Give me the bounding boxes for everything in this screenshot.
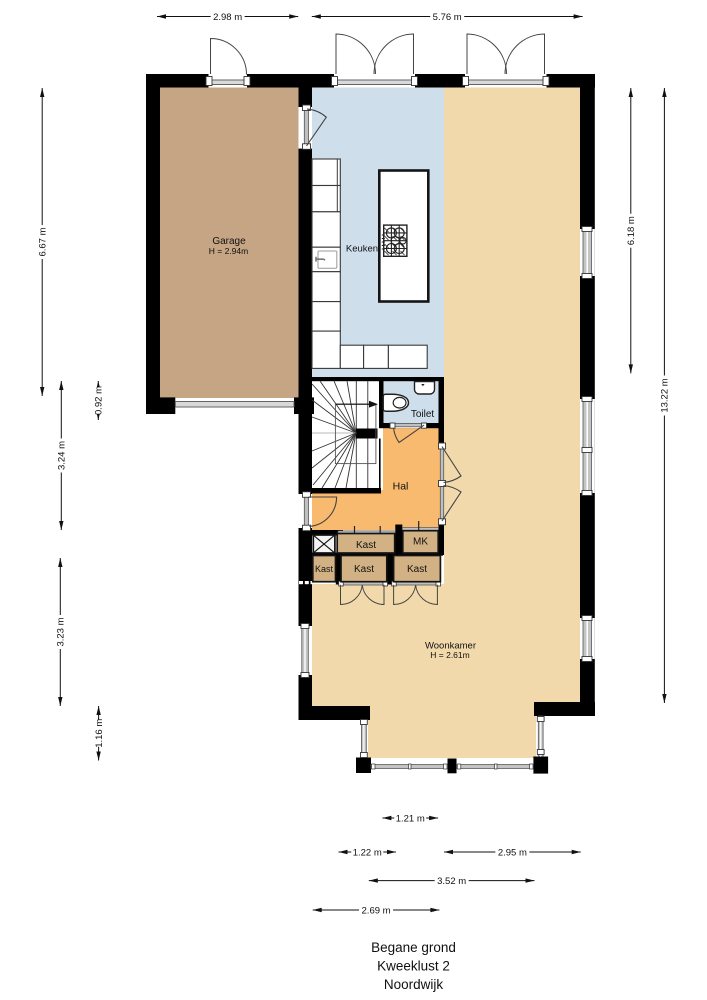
- svg-text:Hal: Hal: [393, 481, 409, 493]
- svg-text:0.92 m: 0.92 m: [94, 386, 105, 415]
- svg-text:2.98 m: 2.98 m: [213, 12, 242, 23]
- svg-text:1.22 m: 1.22 m: [353, 847, 382, 858]
- svg-text:Begane grond: Begane grond: [371, 940, 456, 955]
- svg-text:MK: MK: [413, 537, 428, 548]
- svg-text:2.69 m: 2.69 m: [362, 905, 391, 916]
- svg-text:6.18 m: 6.18 m: [626, 216, 637, 245]
- svg-text:H = 2.94m: H = 2.94m: [209, 246, 248, 256]
- svg-text:Keuken: Keuken: [346, 244, 378, 255]
- svg-text:Kast: Kast: [354, 564, 374, 575]
- svg-text:Kweeklust 2: Kweeklust 2: [377, 959, 450, 974]
- svg-text:Kast: Kast: [356, 540, 376, 551]
- svg-text:Kast: Kast: [407, 564, 427, 575]
- svg-text:13.22 m: 13.22 m: [660, 378, 671, 412]
- svg-text:3.23 m: 3.23 m: [56, 617, 67, 646]
- svg-text:2.95 m: 2.95 m: [498, 847, 527, 858]
- svg-text:3.24 m: 3.24 m: [57, 441, 68, 470]
- svg-text:1.21 m: 1.21 m: [396, 813, 425, 824]
- svg-text:6.67 m: 6.67 m: [38, 227, 49, 256]
- svg-text:1.16 m: 1.16 m: [94, 719, 105, 748]
- svg-text:Kast: Kast: [315, 564, 334, 574]
- svg-text:Toilet: Toilet: [411, 409, 435, 420]
- svg-text:3.52 m: 3.52 m: [437, 876, 466, 887]
- svg-text:5.76 m: 5.76 m: [433, 12, 462, 23]
- svg-text:Noordwijk: Noordwijk: [384, 977, 444, 992]
- svg-text:H = 2.61m: H = 2.61m: [430, 650, 469, 660]
